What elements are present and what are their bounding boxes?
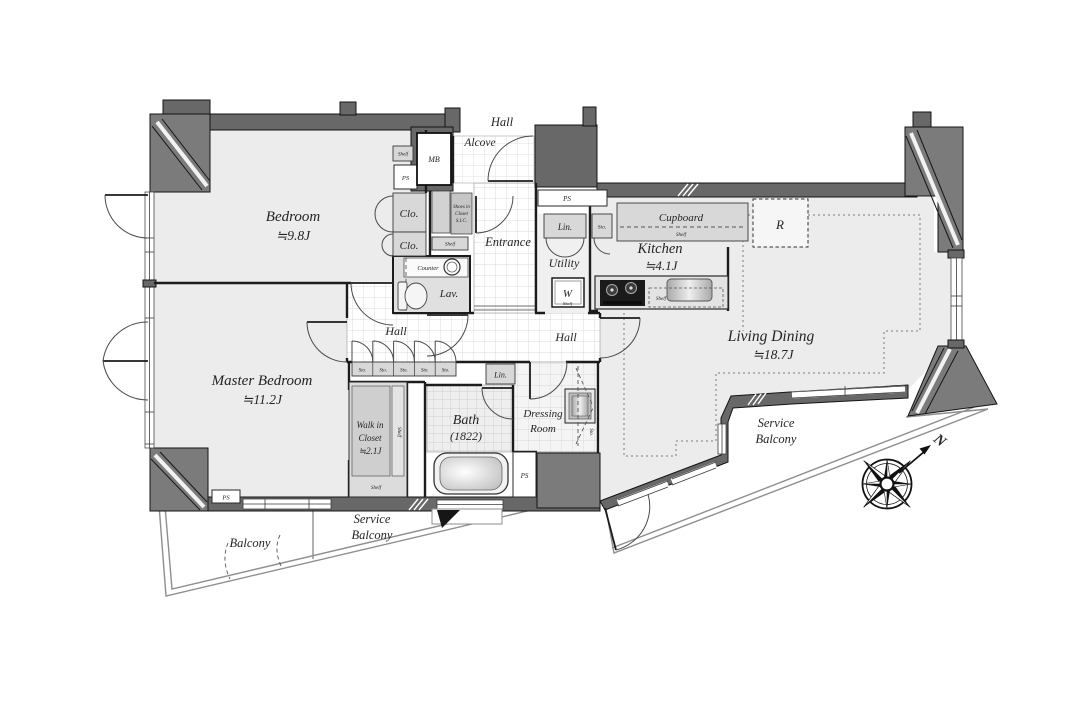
slant-window-3 — [718, 424, 726, 454]
shelf-wic-bottom: Shelf — [371, 486, 382, 491]
closet-lower-label: Clo. — [400, 240, 419, 252]
bedroom-size: ≒9.8J — [276, 228, 311, 243]
shelf-bedroom-label: Shelf — [398, 153, 409, 158]
closet-upper-label: Clo. — [400, 208, 419, 220]
shelf-shoes-label: Shelf — [445, 243, 456, 248]
ps-utility-label: PS — [562, 195, 571, 203]
cupboard-label: Cupboard — [659, 212, 704, 224]
shoes-line3: S.I.C. — [456, 219, 467, 224]
shelf-wic-side: Shelf — [396, 427, 401, 438]
sto-5: Sto. — [442, 369, 450, 374]
hall-center-label: Hall — [384, 324, 407, 338]
kitchen-size: ≒4.1J — [645, 258, 679, 273]
lav-sink-icon — [444, 259, 460, 275]
shelf-cupboard-label: Shelf — [676, 233, 687, 238]
pillar-bottom-left — [150, 448, 208, 511]
entrance-label: Entrance — [484, 235, 531, 249]
shelf-kitchen-label: Shelf — [656, 297, 667, 302]
sto-utility-label: Sto. — [598, 225, 606, 231]
ps-bedroom-label: PS — [401, 175, 410, 182]
ps-master-label: PS — [221, 495, 230, 502]
stove-icon — [600, 280, 645, 306]
service-balcony-east-line2: Balcony — [756, 432, 797, 446]
kitchen-label: Kitchen — [636, 241, 682, 257]
compass-rose: N — [860, 431, 950, 512]
bedroom-label: Bedroom — [266, 209, 321, 225]
wic-line2: Closet — [358, 433, 382, 443]
sto-3: Sto. — [400, 369, 408, 374]
service-balcony-south-line2: Balcony — [352, 528, 393, 542]
bath-label: Bath — [453, 413, 479, 428]
sto-2: Sto. — [379, 369, 387, 374]
floor-plan: PS — [0, 0, 1080, 720]
kitchen-sink-icon — [667, 279, 712, 301]
service-balcony-east-line1: Service — [758, 416, 795, 430]
compass-north-label: N — [929, 431, 949, 452]
hall-east-label: Hall — [554, 330, 577, 344]
master-bedroom-size: ≒11.2J — [242, 392, 283, 407]
living-dining-size: ≒18.7J — [753, 347, 795, 362]
shoes-line2: Closet — [455, 212, 468, 217]
sto-4: Sto. — [421, 369, 429, 374]
alcove-label: Alcove — [463, 137, 495, 149]
counter-label: Counter — [417, 265, 439, 272]
shelf-washer-label: Shelf — [563, 301, 573, 306]
wic-line1: Walk in — [357, 420, 384, 430]
washer-label: W — [563, 288, 573, 300]
pillar-center-south — [537, 453, 600, 508]
pillar-top-left — [150, 114, 210, 192]
sto-1: Sto. — [359, 369, 367, 374]
bedroom-floor-left — [154, 192, 214, 284]
utility-label: Utility — [549, 256, 580, 270]
shoes-closet: Shoes in Closet S.I.C. Shelf — [432, 191, 472, 250]
floor-plan-page: PS — [0, 0, 1080, 720]
wic-size: ≒2.1J — [359, 446, 383, 456]
hall-top-label: Hall — [490, 115, 514, 129]
balcony-label: Balcony — [230, 536, 271, 550]
refrigerator-label: R — [775, 217, 784, 232]
sto-dressing-label: Sto. — [588, 428, 593, 436]
toilet-bowl-icon — [405, 283, 427, 309]
lavatory: Counter Lav. — [393, 256, 470, 313]
walk-in-closet: Walk in Closet ≒2.1J Shelf Shelf — [349, 382, 407, 497]
dressing-line1: Dressing — [522, 408, 563, 420]
ps-bath-label: PS — [520, 472, 529, 480]
lav-label: Lav. — [439, 288, 458, 300]
mb-label: MB — [427, 155, 440, 164]
bath-size: (1822) — [450, 429, 482, 443]
living-dining-label: Living Dining — [727, 328, 815, 345]
dressing-line2: Room — [529, 423, 556, 435]
west-windows — [103, 192, 156, 448]
lin-bath-label: Lin. — [493, 371, 507, 380]
lin-utility-label: Lin. — [557, 222, 572, 232]
master-bedroom-label: Master Bedroom — [211, 373, 313, 389]
north-arrow-icon — [899, 445, 931, 473]
service-balcony-south-line1: Service — [354, 512, 391, 526]
shoes-line1: Shoes in — [453, 205, 470, 210]
